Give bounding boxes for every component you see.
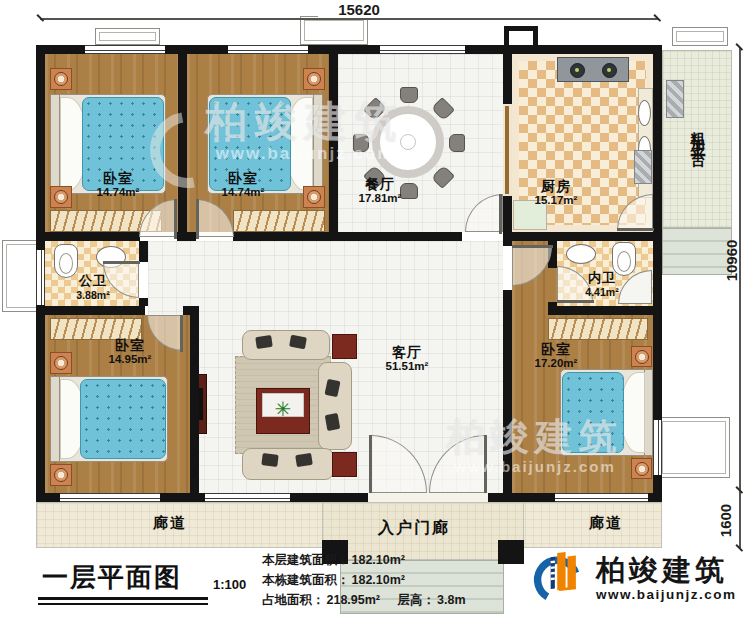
label-corridor-right: 廊道 bbox=[546, 514, 666, 533]
title-underline bbox=[38, 603, 208, 605]
door-leaf bbox=[512, 245, 553, 248]
interior-wall bbox=[503, 241, 512, 246]
room-label-bedroom-br: 卧室 17.20m² bbox=[500, 341, 612, 370]
room-label-platform: 粗加工平台 bbox=[688, 120, 707, 145]
window bbox=[60, 493, 160, 502]
stat-floor-area: 本层建筑面积：182.10m² bbox=[262, 552, 405, 569]
interior-wall bbox=[503, 290, 512, 493]
plan-title: 一层平面图 bbox=[42, 560, 182, 595]
brand-logo-text: 柏竣建筑 www.baijunjz.com bbox=[596, 556, 737, 602]
door-leaf bbox=[557, 300, 594, 303]
interior-wall bbox=[190, 315, 199, 493]
stat-building-area: 本栋建筑面积：182.10m² bbox=[262, 572, 405, 589]
dimension-line-right-lower bbox=[739, 490, 741, 548]
flue-box bbox=[504, 26, 538, 50]
window bbox=[555, 493, 648, 502]
entry-door-leaf bbox=[484, 435, 487, 493]
interior-wall bbox=[45, 232, 140, 241]
interior-wall bbox=[183, 306, 199, 315]
brand-website: www.baijunjz.com bbox=[596, 587, 737, 602]
porch-pillar bbox=[498, 540, 524, 564]
interior-wall bbox=[503, 54, 512, 104]
interior-wall bbox=[178, 54, 187, 241]
exterior-wall-segment bbox=[653, 230, 662, 241]
room-label-dining: 餐厅 17.81m² bbox=[320, 176, 440, 205]
exterior-wall-segment bbox=[653, 54, 662, 185]
label-entry-porch: 入户门廊 bbox=[344, 518, 484, 539]
room-label-kitchen: 厨房 15.17m² bbox=[496, 178, 616, 207]
window-bay bbox=[95, 28, 160, 45]
door-leaf bbox=[617, 228, 654, 231]
room-label-bedroom-tm: 卧室 14.74m² bbox=[183, 170, 303, 199]
window-bay bbox=[672, 27, 728, 46]
door-leaf bbox=[174, 199, 177, 239]
interior-wall bbox=[177, 232, 196, 241]
dimension-line-top bbox=[40, 18, 658, 20]
interior-wall bbox=[233, 232, 462, 241]
room-label-public-bath: 公卫 3.88m² bbox=[43, 274, 143, 301]
plan-scale: 1:100 bbox=[213, 577, 246, 592]
door-leaf bbox=[103, 261, 140, 264]
room-label-living: 客厅 51.51m² bbox=[347, 344, 467, 373]
label-corridor-left: 廊道 bbox=[110, 514, 230, 533]
bay-box-right bbox=[658, 417, 730, 478]
interior-wall bbox=[45, 306, 145, 315]
room-label-ensuite: 内卫 4.41m² bbox=[552, 271, 652, 298]
brand-logo-icon bbox=[532, 548, 588, 610]
door-leaf bbox=[196, 199, 199, 239]
dimension-top-value: 15620 bbox=[318, 1, 400, 18]
window bbox=[205, 493, 290, 502]
window-bay bbox=[300, 16, 368, 45]
interior-wall bbox=[139, 241, 148, 262]
window bbox=[653, 420, 662, 475]
dimension-right-lower-value: 1600 bbox=[717, 490, 734, 552]
dimension-right-upper-value: 10960 bbox=[723, 220, 740, 302]
title-underline bbox=[38, 597, 208, 600]
floor-plan-canvas: 15620 10960 1600 bbox=[0, 0, 750, 618]
room-label-bedroom-tl: 卧室 14.74m² bbox=[58, 170, 178, 199]
room-label-bedroom-bl: 卧室 14.95m² bbox=[70, 337, 190, 366]
stat-footprint-and-height: 占地面积：218.95m² 层高：3.8m bbox=[262, 592, 466, 609]
entry-door-leaf bbox=[369, 435, 372, 493]
window bbox=[380, 45, 465, 54]
brand-name: 柏竣建筑 bbox=[596, 556, 737, 585]
interior-wall bbox=[329, 54, 338, 241]
interior-wall bbox=[548, 306, 653, 315]
brand-logo: 柏竣建筑 www.baijunjz.com bbox=[532, 548, 737, 610]
side-steps bbox=[662, 228, 732, 275]
platform-appliance bbox=[666, 80, 684, 118]
entry-doorway bbox=[368, 493, 488, 502]
interior-wall bbox=[503, 232, 653, 241]
window bbox=[85, 45, 165, 54]
window bbox=[228, 45, 308, 54]
